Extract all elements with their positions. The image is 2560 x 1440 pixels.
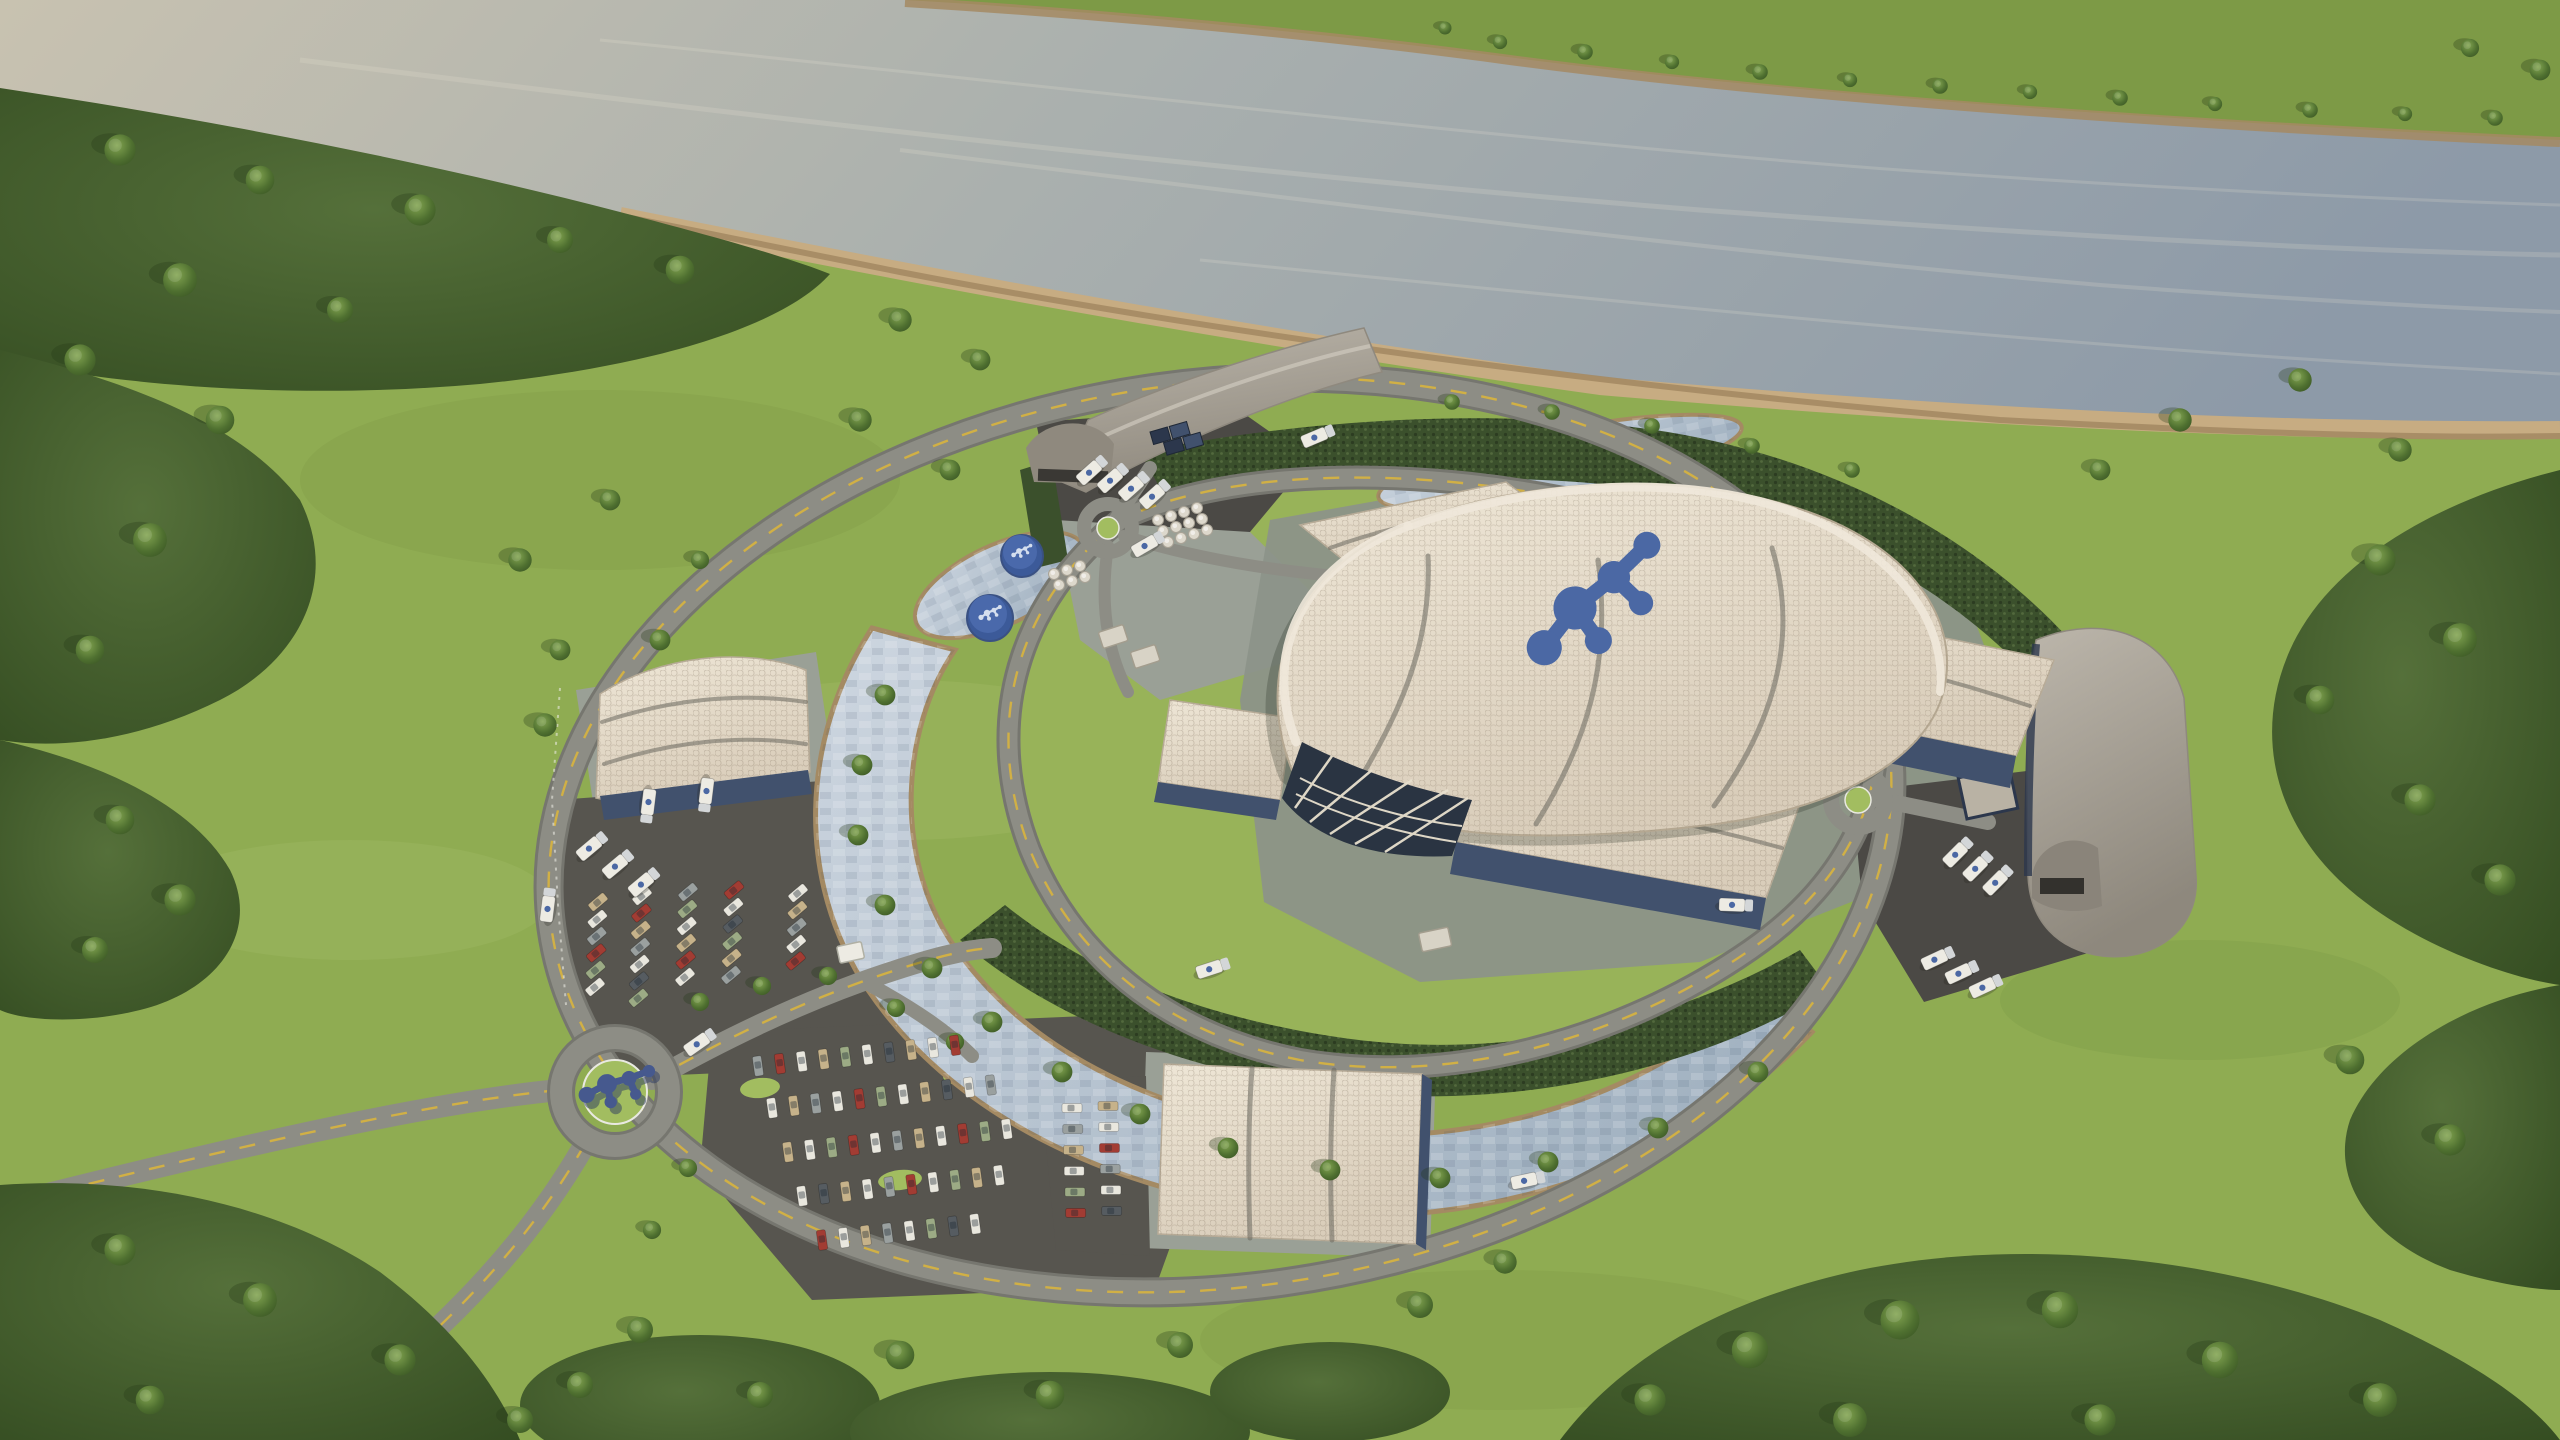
aerial-render xyxy=(0,0,2560,1440)
storage-cask xyxy=(1166,511,1177,522)
storage-tank xyxy=(1001,535,1043,577)
parked-car xyxy=(1064,1166,1084,1175)
storage-cask xyxy=(1075,561,1086,572)
storage-cask xyxy=(1197,514,1208,525)
forest-south-center xyxy=(1210,1342,1450,1440)
parked-car xyxy=(1063,1145,1083,1154)
storage-cask xyxy=(1049,569,1060,580)
parked-car xyxy=(1100,1164,1120,1173)
storage-cask xyxy=(1192,503,1203,514)
storage-cask xyxy=(1202,525,1213,536)
storage-cask xyxy=(1171,522,1182,533)
storage-cask xyxy=(1189,529,1200,540)
parked-car xyxy=(1065,1187,1085,1196)
parked-car xyxy=(1099,1143,1119,1152)
warehouse-east-door xyxy=(2040,878,2084,894)
storage-cask xyxy=(1080,572,1091,583)
storage-cask xyxy=(1184,518,1195,529)
parked-car xyxy=(1101,1185,1121,1194)
storage-cask xyxy=(1176,533,1187,544)
storage-tank xyxy=(967,595,1013,641)
scene-canvas xyxy=(0,0,2560,1440)
visitor-center xyxy=(1158,1064,1432,1250)
storage-cask xyxy=(1153,515,1164,526)
parked-car xyxy=(1102,1206,1122,1215)
storage-cask xyxy=(1054,580,1065,591)
parked-car xyxy=(1066,1208,1086,1217)
storage-cask xyxy=(1179,507,1190,518)
parked-car xyxy=(1099,1122,1119,1131)
parked-car xyxy=(1098,1102,1118,1111)
parked-car xyxy=(1063,1124,1083,1133)
storage-cask xyxy=(1067,576,1078,587)
storage-cask xyxy=(1062,565,1073,576)
parked-car xyxy=(1062,1104,1082,1113)
